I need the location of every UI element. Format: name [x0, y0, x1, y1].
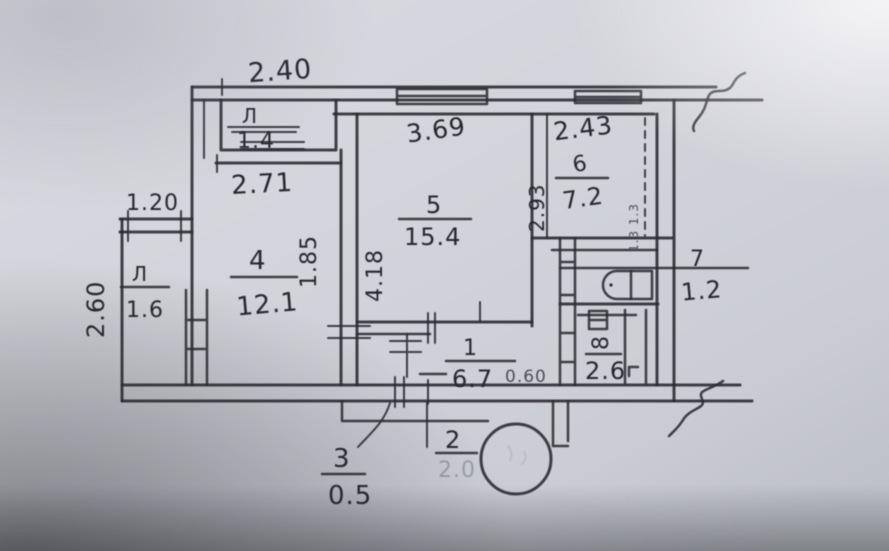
- floor-plan-canvas: 2.40 Л 1.4 2.71 3.69 2.43 6 7.2 2.93 5 1…: [0, 0, 889, 551]
- floor-plan-photo: 2.40 Л 1.4 2.71 3.69 2.43 6 7.2 2.93 5 1…: [0, 0, 889, 551]
- shadow-bottom-edge: [0, 0, 889, 551]
